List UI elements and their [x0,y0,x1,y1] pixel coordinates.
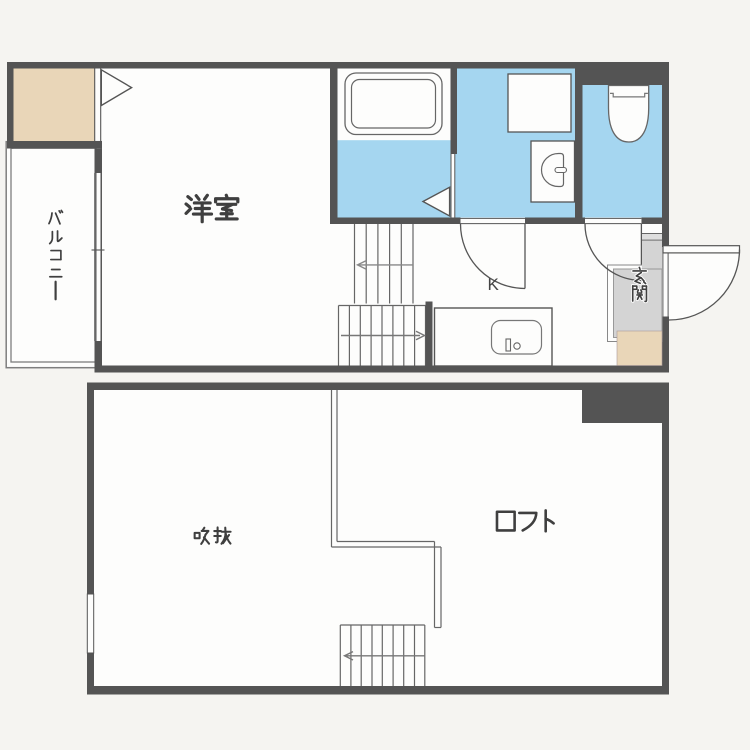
svg-text:K: K [488,275,500,294]
